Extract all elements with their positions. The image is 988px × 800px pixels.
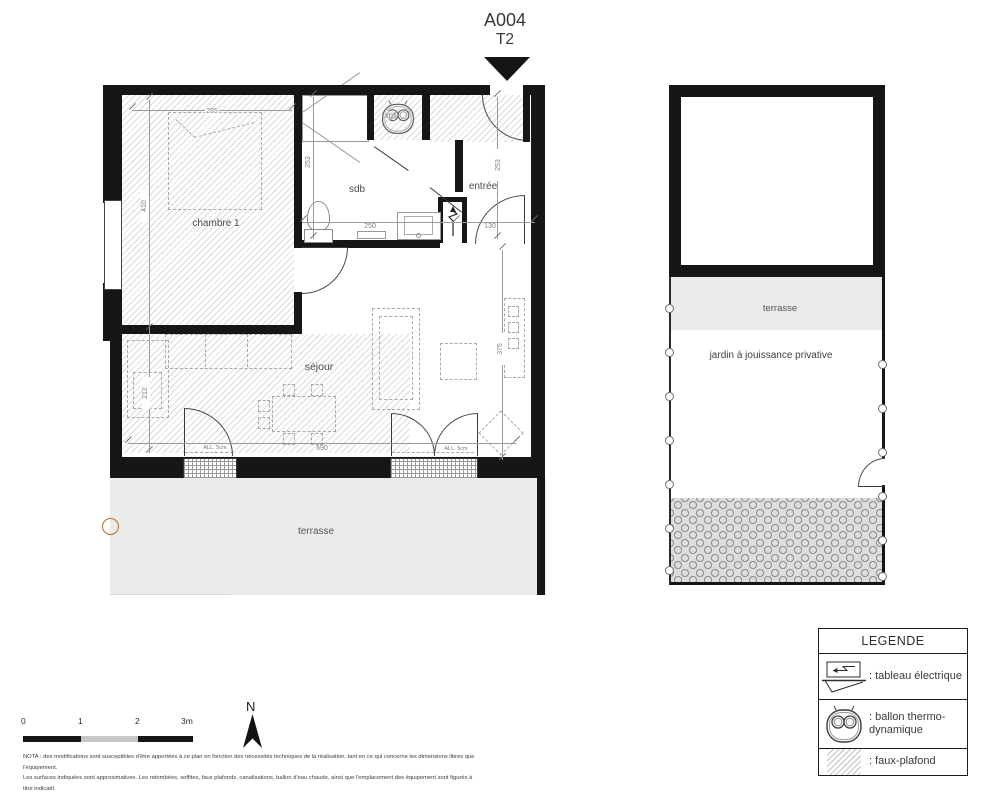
hedge-dot bbox=[665, 348, 674, 357]
dim-sdb-height: 253 bbox=[305, 146, 313, 178]
sideboard-shelf bbox=[508, 322, 519, 333]
sideboard-shelf bbox=[508, 338, 519, 349]
dining-chair bbox=[258, 400, 270, 412]
scale-segment bbox=[81, 736, 138, 742]
electrical-panel-legend-icon bbox=[819, 659, 869, 695]
north-arrow-icon bbox=[243, 714, 262, 748]
wall-bottom bbox=[110, 457, 545, 478]
nota-line2: Les surfaces indiquées sont approximativ… bbox=[23, 773, 478, 794]
dim-chambre-width: 285 bbox=[205, 108, 219, 116]
water-heater-legend-icon bbox=[819, 702, 869, 746]
hedge-dot bbox=[878, 536, 887, 545]
hedge-dot bbox=[665, 436, 674, 445]
window-left-facade bbox=[104, 200, 122, 290]
wall-divider-shower-rgt bbox=[367, 95, 374, 140]
sdb-door-leaf bbox=[374, 146, 409, 171]
lot-type: T2 bbox=[455, 31, 555, 49]
site-terrasse-label: terrasse bbox=[730, 303, 830, 314]
legend-row-ballon: : ballon thermo-dynamique bbox=[819, 700, 967, 749]
hedge-dot bbox=[665, 392, 674, 401]
site-jardin-label: jardin à jouissance privative bbox=[681, 350, 861, 361]
dim-cuisine-height: 212 bbox=[142, 377, 150, 409]
wall-right bbox=[531, 85, 545, 478]
scale-tick-0: 0 bbox=[21, 716, 26, 726]
water-heater-icon bbox=[379, 96, 417, 138]
wall-left-pilaster bbox=[103, 85, 110, 203]
hedge-dot bbox=[878, 492, 887, 501]
hedge-dot bbox=[665, 304, 674, 313]
wall-left-pilaster bbox=[103, 283, 110, 341]
hedge-dot bbox=[878, 572, 887, 581]
scale-tick-2: 2 bbox=[135, 716, 140, 726]
room-label-sdb: sdb bbox=[327, 185, 387, 195]
dim-entree-width: 130 bbox=[483, 223, 497, 231]
north-label: N bbox=[246, 699, 255, 714]
sofa-cushions bbox=[379, 316, 413, 400]
dim-chambre-height: 410 bbox=[141, 190, 149, 222]
scale-bar: 0 1 2 3m bbox=[23, 716, 195, 746]
dining-chair bbox=[311, 384, 323, 396]
hedge-dot bbox=[878, 448, 887, 457]
floorplan-canvas: A004 T2 ALL. 5cm ALL. 5cm bbox=[0, 0, 988, 800]
room-label-chambre: chambre 1 bbox=[156, 219, 276, 229]
kitchen-cabinets bbox=[165, 334, 292, 369]
kitchen-cabinet-divider bbox=[205, 334, 206, 367]
site-building bbox=[669, 85, 885, 277]
dim-sdb-width: 250 bbox=[363, 223, 377, 231]
scale-tick-3m: 3m bbox=[181, 716, 193, 726]
legend-row-fauxplafond: : faux-plafond bbox=[819, 749, 967, 775]
entrance-door-leaf bbox=[523, 95, 530, 142]
legend-header: LEGENDE bbox=[819, 629, 967, 654]
hedge-dot bbox=[665, 524, 674, 533]
hedge-dot bbox=[878, 404, 887, 413]
lot-marker-icon bbox=[484, 57, 530, 81]
hedge-dot bbox=[878, 360, 887, 369]
room-label-sejour: séjour bbox=[284, 362, 354, 373]
dim-tick bbox=[499, 243, 506, 250]
legend-title: LEGENDE bbox=[861, 634, 924, 648]
hedge-dot bbox=[665, 480, 674, 489]
dim-entree-height: 253 bbox=[495, 149, 503, 181]
sideboard-shelf bbox=[508, 306, 519, 317]
terrace-shrub-icon bbox=[102, 518, 119, 535]
chambre-door bbox=[302, 247, 348, 294]
side-table bbox=[440, 343, 477, 380]
window-sejour-left bbox=[183, 458, 237, 479]
scale-segment bbox=[23, 736, 81, 742]
dim-sejour-height: 375 bbox=[497, 333, 505, 365]
vanity-drain bbox=[416, 233, 421, 238]
wall-top bbox=[110, 85, 490, 95]
legend-label-ballon: : ballon thermo-dynamique bbox=[869, 711, 960, 737]
dim-sejour-width: 690 bbox=[315, 445, 329, 453]
nota-line1: NOTA : des modifications sont susceptibl… bbox=[23, 752, 478, 773]
lot-number: A004 bbox=[455, 10, 555, 31]
legend-row-tableau: : tableau électrique bbox=[819, 654, 967, 700]
hatch-legend-icon bbox=[819, 749, 869, 775]
legend-label-tableau: : tableau électrique bbox=[869, 670, 967, 683]
wall-chambre-right-upper bbox=[294, 95, 302, 247]
room-label-entree: entrée bbox=[453, 182, 513, 192]
room-label-terrasse: terrasse bbox=[266, 527, 366, 537]
terrace-right-wall bbox=[537, 478, 545, 595]
legend-label-fauxplafond: : faux-plafond bbox=[869, 755, 967, 768]
site-gravel-area bbox=[671, 498, 882, 582]
terrace-edge-line bbox=[110, 594, 230, 595]
legend: LEGENDE : tableau électrique bbox=[818, 628, 968, 776]
scale-segment bbox=[138, 736, 193, 742]
dining-chair bbox=[258, 417, 270, 429]
wall-divider-rgt-entree bbox=[422, 95, 430, 140]
dining-table bbox=[272, 396, 336, 432]
hedge-dot bbox=[665, 566, 674, 575]
nota: NOTA : des modifications sont susceptibl… bbox=[23, 752, 478, 795]
dining-chair bbox=[283, 384, 295, 396]
scale-tick-1: 1 bbox=[78, 716, 83, 726]
window-sejour-right bbox=[390, 458, 478, 479]
kitchen-cabinet-divider bbox=[247, 334, 248, 367]
rangement-label: rgt bbox=[386, 111, 395, 120]
